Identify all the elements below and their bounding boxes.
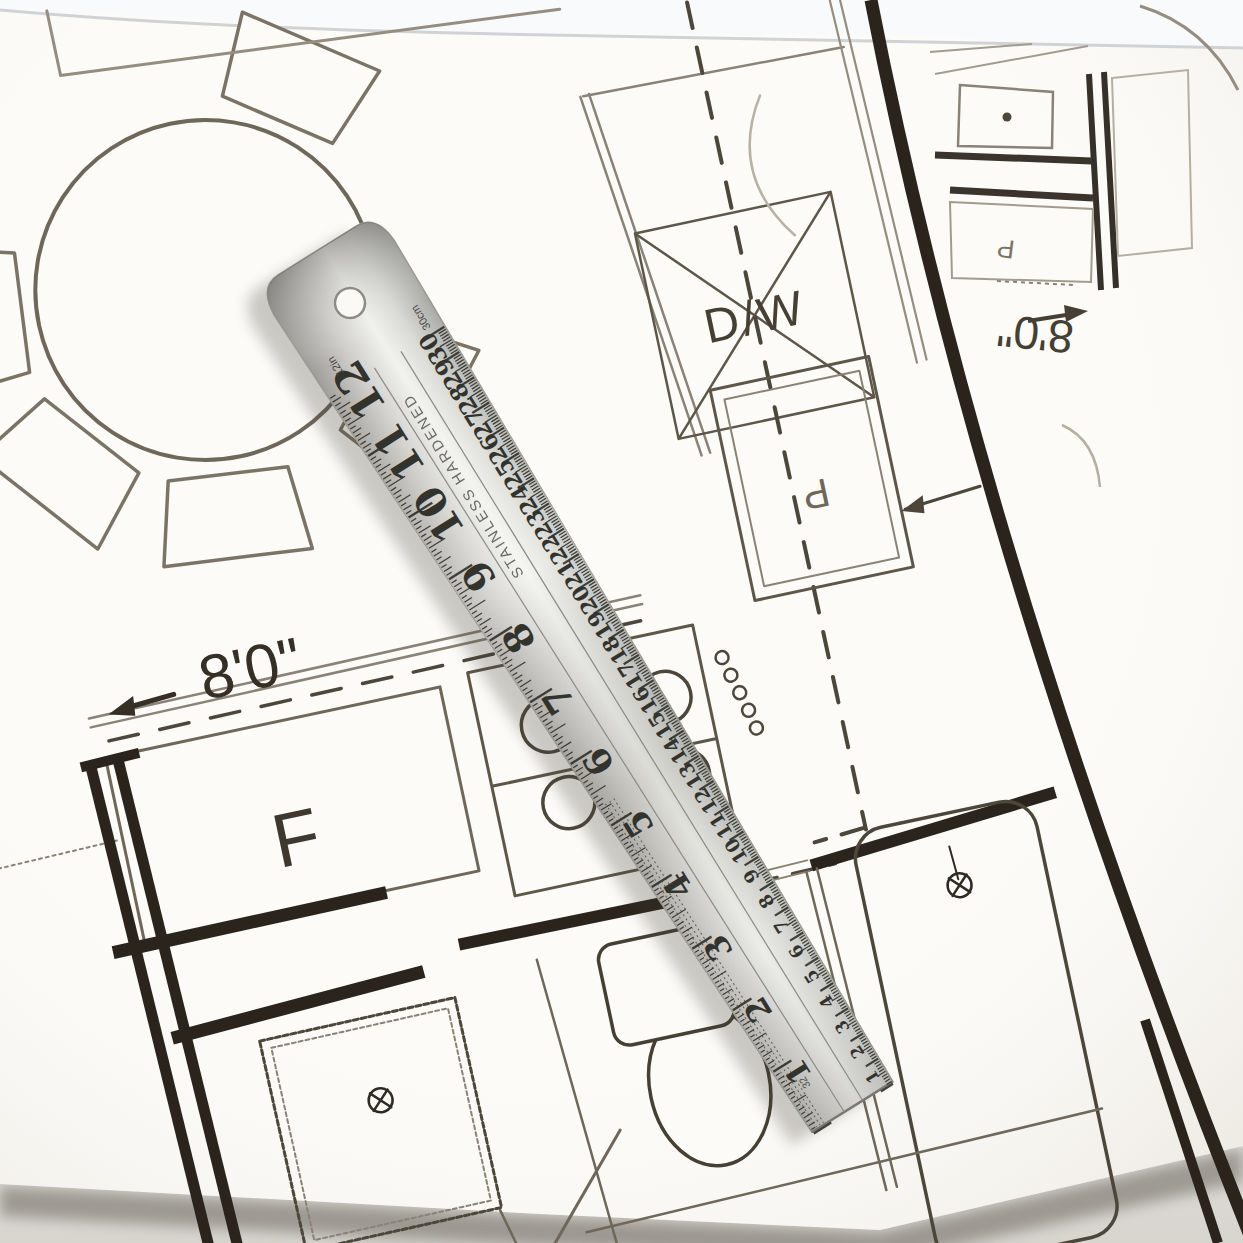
scene: D/W P F 8'0" bbox=[0, 0, 1243, 1243]
pantry-label: P bbox=[995, 233, 1016, 265]
photo-of-ruler-on-floor-plan: D/W P F 8'0" bbox=[0, 0, 1243, 1243]
dimension-topright-label: 8'0" bbox=[995, 304, 1076, 364]
pantry-shelf-dot bbox=[1003, 113, 1012, 122]
